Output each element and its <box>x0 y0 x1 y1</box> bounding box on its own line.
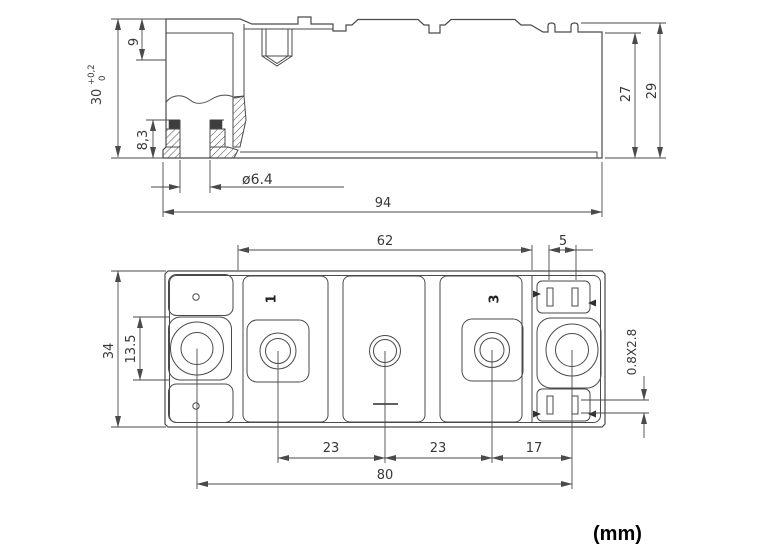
dim-34-text: 34 <box>102 343 117 360</box>
dim-30-tol-upper: +0,2 <box>87 64 97 85</box>
dim-mounting-span: 80 <box>197 468 572 484</box>
dim-dia-text: ø6.4 <box>242 172 273 188</box>
plan-view: 1 3 <box>102 234 649 489</box>
dim-pitch-chain: 23 23 17 <box>278 441 572 458</box>
dim-17-text: 17 <box>526 441 543 456</box>
left-boss <box>169 317 232 380</box>
dim-hole-diameter: ø6.4 <box>151 160 344 193</box>
technical-drawing-canvas: 30 +0,2 0 9 8,3 ø6. <box>0 0 764 546</box>
units-note: (mm) <box>593 523 642 545</box>
tab-group-bottom <box>537 389 590 421</box>
dim-23b-text: 23 <box>430 441 447 456</box>
marker-arrow-bottom-right <box>588 411 596 418</box>
dim-length: 94 <box>163 162 602 217</box>
module-side-outline <box>163 17 602 158</box>
terminal-screw <box>244 29 333 66</box>
dim-23a-text: 23 <box>323 441 340 456</box>
dim-tab-section-text: 0.8X2.8 <box>625 329 639 375</box>
dim-27-text: 27 <box>619 86 634 103</box>
section-sliver <box>233 96 246 147</box>
left-mount-section <box>169 275 234 423</box>
tab-slot-top-left <box>547 288 553 306</box>
dim-94-text: 94 <box>375 196 392 211</box>
pilot-hole-top <box>193 294 199 300</box>
dim-80-text: 80 <box>377 468 394 483</box>
dim-62-text: 62 <box>377 234 394 249</box>
terminal1-label: 1 <box>265 294 280 303</box>
dim-8-3-text: 8,3 <box>136 130 151 151</box>
dim-29-text: 29 <box>645 83 660 100</box>
dim-tab-section: 0.8X2.8 <box>581 329 649 438</box>
dim-5-text: 5 <box>559 234 567 249</box>
terminal3-pad <box>462 319 523 381</box>
pilot-hole-bottom <box>193 403 199 409</box>
dim-30-tol-lower: 0 <box>98 76 108 81</box>
tab-slot-bottom-right <box>572 396 578 414</box>
terminal-section-1: 1 <box>243 276 328 422</box>
mounting-bushing-section <box>163 120 238 158</box>
seal-right <box>210 120 222 129</box>
terminal-section-3: 3 <box>440 276 523 422</box>
drawing-page: 30 +0,2 0 9 8,3 ø6. <box>0 0 764 546</box>
tab-slot-bottom-left <box>547 396 553 414</box>
dim-terminal-span: 62 <box>238 234 532 270</box>
tab-group-top <box>537 281 590 313</box>
tab-slot-top-right <box>572 288 578 306</box>
break-line <box>166 95 244 103</box>
baseplate-line <box>240 152 597 158</box>
dim-bushing-height: 8,3 <box>136 120 166 158</box>
dim-9-text: 9 <box>127 38 142 46</box>
dim-tab-gap: 5 <box>549 234 593 280</box>
terminal-section-mid <box>343 276 425 422</box>
dim-terminal-recess: 9 <box>127 19 166 60</box>
dim-13-5-text: 13.5 <box>124 335 139 364</box>
dim-30-text: 30 <box>90 89 105 106</box>
marker-arrow-top-right <box>588 300 596 307</box>
terminal3-label: 3 <box>488 294 503 303</box>
seal-left <box>169 120 180 129</box>
dim-boss-size: 13.5 <box>124 317 170 380</box>
side-view: 30 +0,2 0 9 8,3 ø6. <box>87 17 666 217</box>
